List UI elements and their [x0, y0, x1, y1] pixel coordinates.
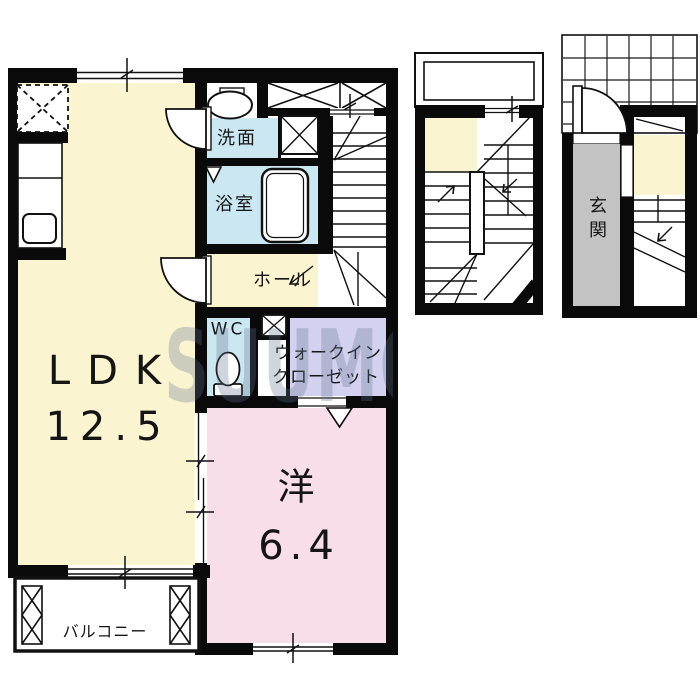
entrance-unit [562, 35, 697, 318]
stair-center-divider [470, 172, 484, 254]
washroom-label: 洗面 [217, 130, 257, 148]
kitchen-counter [18, 143, 62, 248]
closet-label-line2: クローゼット [272, 370, 380, 387]
floorplan: LDK 12.5 洋 6.4 洗面 浴室 ホール WC ウォークイン クローゼッ… [0, 0, 700, 700]
laundry-box [281, 116, 318, 154]
western-room-label: 洋 [278, 469, 315, 506]
wc-label: WC [211, 322, 246, 339]
entrance-inner-door [621, 145, 633, 197]
sliding-door [195, 413, 207, 563]
ldk-area: 12.5 [45, 407, 170, 447]
ldk-label: LDK [48, 351, 178, 391]
bathtub [262, 169, 308, 242]
refrigerator-space [17, 85, 68, 132]
closet-label-line1: ウォークイン [274, 346, 382, 363]
balcony-pillar-left [22, 586, 42, 644]
kitchen-sink [23, 214, 56, 243]
balcony-label: バルコニー [63, 624, 148, 640]
entrance-stair-landing [634, 135, 685, 195]
stairwell-unit [415, 53, 543, 315]
stairwell-window [485, 105, 519, 118]
entrance-label: 玄関 [587, 196, 605, 244]
western-room-area: 6.4 [258, 526, 340, 566]
bathroom-label: 浴室 [215, 196, 255, 214]
balcony-pillar-right [170, 586, 190, 644]
entrance-threshold [573, 133, 620, 144]
toilet [214, 353, 242, 397]
entrance-door-leaf [573, 86, 582, 133]
stair-landing-fill [425, 118, 477, 172]
hall-label: ホール [253, 272, 313, 290]
